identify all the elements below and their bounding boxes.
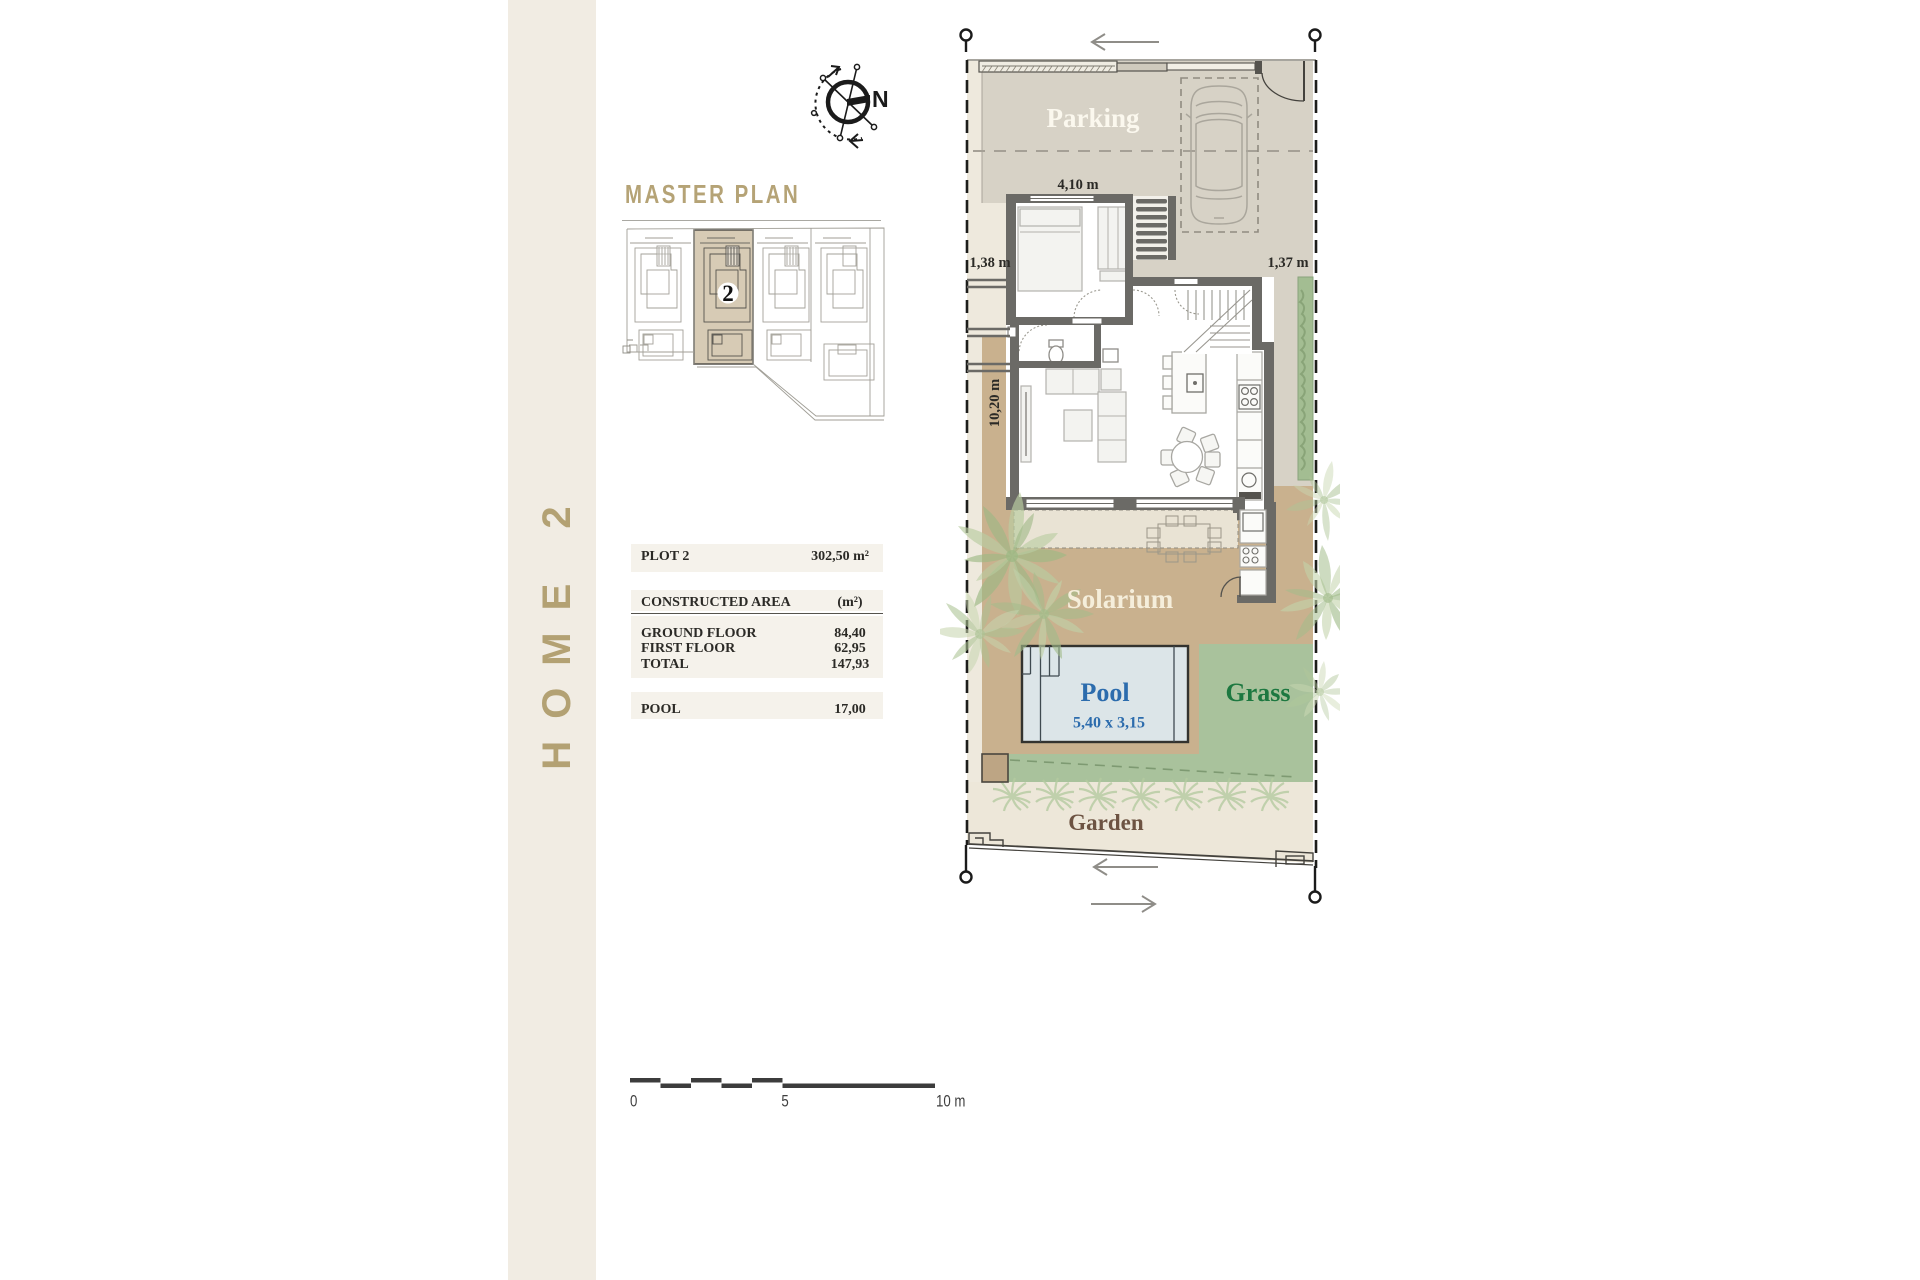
svg-text:N: N bbox=[872, 86, 889, 112]
svg-text:5,40 x 3,15: 5,40 x 3,15 bbox=[1073, 715, 1145, 732]
svg-text:1,38 m: 1,38 m bbox=[969, 255, 1010, 271]
svg-text:10 m: 10 m bbox=[936, 1092, 965, 1111]
svg-text:4,10 m: 4,10 m bbox=[1057, 177, 1098, 193]
svg-text:Solarium: Solarium bbox=[1067, 584, 1174, 614]
svg-text:Parking: Parking bbox=[1046, 103, 1140, 133]
svg-text:5: 5 bbox=[781, 1092, 788, 1111]
svg-text:Pool: Pool bbox=[1080, 678, 1129, 707]
svg-text:Garden: Garden bbox=[1068, 810, 1144, 835]
svg-text:0: 0 bbox=[630, 1092, 637, 1111]
svg-text:Grass: Grass bbox=[1226, 678, 1291, 707]
svg-text:1,37 m: 1,37 m bbox=[1267, 255, 1308, 271]
svg-text:10,20 m: 10,20 m bbox=[987, 379, 1003, 427]
svg-text:2: 2 bbox=[722, 281, 734, 306]
